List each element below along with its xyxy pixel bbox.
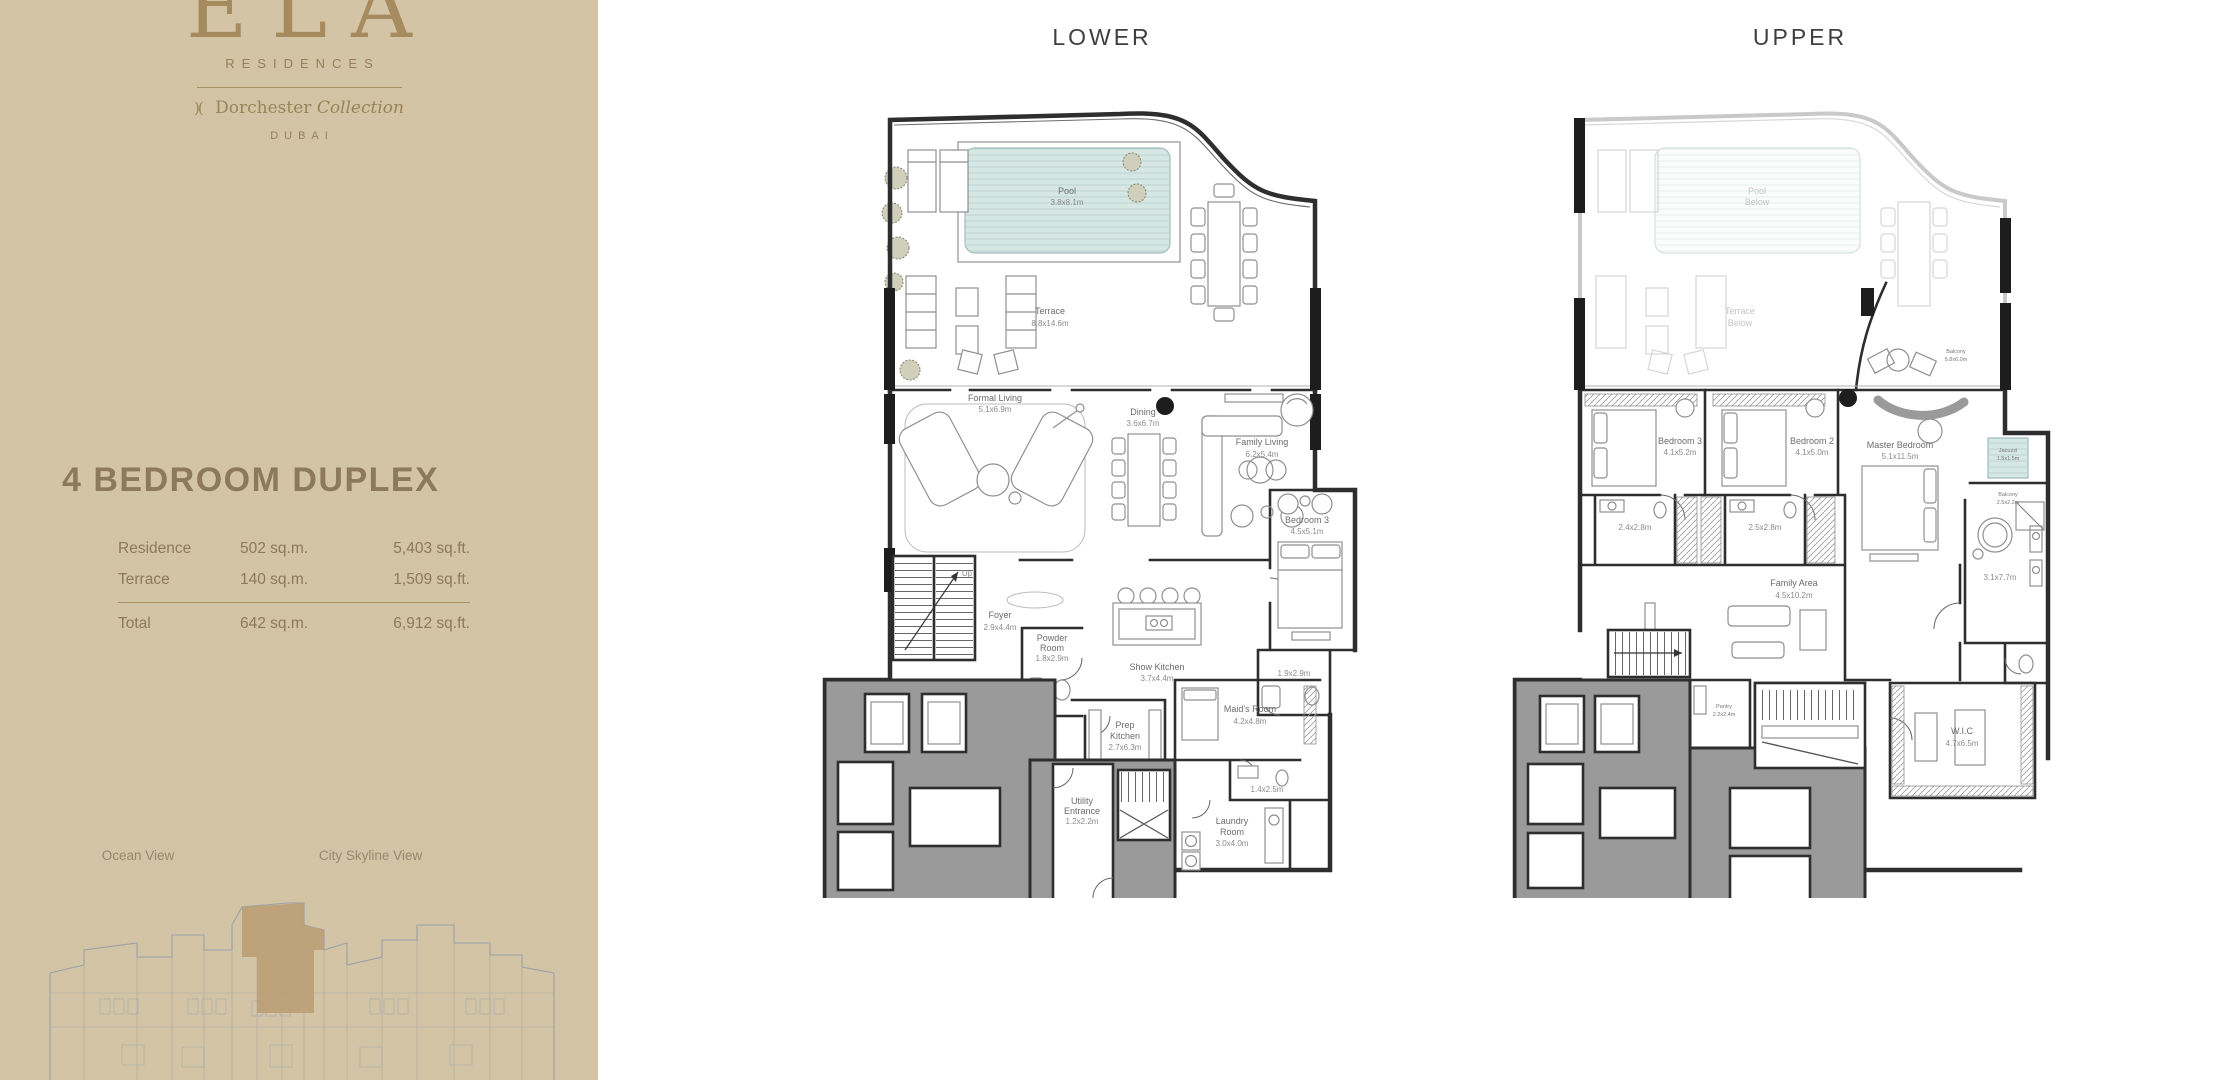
column-icon (1156, 397, 1174, 415)
show-kitchen: Show Kitchen 3.7x4.4m (1113, 588, 1201, 683)
room-dim-prep-kitchen: 2.7x6.3m (1109, 743, 1142, 752)
area-sqft: 5,403 sq.ft. (358, 540, 470, 558)
room-label-foyer: Foyer (988, 610, 1011, 620)
table-row: Terrace 140 sq.m. 1,509 sq.ft. (118, 571, 470, 589)
stairs-down (1608, 630, 1690, 677)
table-row-total: Total 642 sq.m. 6,912 sq.ft. (118, 615, 470, 633)
bedroom-2: Bedroom 2 4.1x5.0m (1713, 394, 1834, 486)
wc-toilet (2019, 655, 2033, 673)
plant-icon (900, 360, 920, 380)
room-dim-show-kitchen: 3.7x4.4m (1141, 674, 1174, 683)
room-label-dining: Dining (1130, 407, 1156, 417)
svg-text:Bedroom 3: Bedroom 3 (1658, 436, 1702, 446)
room-dim-jacuzzi: 1.5x1.5m (1997, 456, 2020, 462)
room-dim-pantry: 2.2x2.4m (1713, 712, 1736, 718)
collection-line: )( Dorchester Collection (0, 98, 598, 118)
room-dim-family-living: 6.2x5.4m (1246, 450, 1279, 459)
room-label-pool: Pool (1058, 186, 1076, 196)
svg-text:Powder: Powder (1037, 633, 1068, 643)
room-dim-utility: 1.2x2.2m (1066, 817, 1099, 826)
svg-text:Bedroom 2: Bedroom 2 (1790, 436, 1834, 446)
area-label: Total (118, 615, 240, 633)
outdoor-dining-table (1208, 202, 1240, 306)
jacuzzi: Jacuzzi 1.5x1.5m (1988, 438, 2028, 478)
svg-text:Room: Room (1040, 643, 1064, 653)
view-label-city: City Skyline View (288, 848, 453, 863)
floor-plan-upper: Pool Below Terrace Below Balcony 5.8x6.0… (1500, 98, 2090, 898)
svg-text:Balcony: Balcony (1946, 349, 1966, 355)
svg-text:Below: Below (1728, 318, 1753, 328)
area-sqm: 642 sq.m. (240, 615, 358, 633)
plan-title-upper: UPPER (1690, 24, 1910, 51)
terrace-zone: Pool 3.8x8.1m Terrace 8.8x14.6m (882, 119, 1310, 380)
svg-text:Family Area: Family Area (1770, 578, 1818, 588)
bedroom-3: Bedroom 3 4.5x5.1m (1278, 494, 1342, 640)
collection-word: Collection (317, 98, 404, 118)
room-dim-bath3: 1.9x2.9m (1278, 669, 1311, 678)
logo-divider (197, 87, 402, 88)
area-label: Residence (118, 540, 240, 558)
room-dim-balcony-top: 5.8x6.0m (1945, 357, 1968, 363)
stairs-up: Up Foyer 2.9x4.4m (893, 556, 1063, 660)
room-label-formal-living: Formal Living (968, 393, 1022, 403)
site-key-plan (42, 895, 562, 1080)
svg-text:Jacuzzi: Jacuzzi (1999, 448, 2017, 454)
room-dim-master: 5.1x11.5m (1882, 452, 1919, 461)
table-divider (118, 602, 470, 603)
brand-residences: RESIDENCES (0, 56, 598, 71)
site-highlight-unit (242, 903, 324, 1013)
room-dim-terrace: 8.8x14.6m (1031, 319, 1069, 328)
table-row: Residence 502 sq.m. 5,403 sq.ft. (118, 540, 470, 558)
room-dim-maids-bath: 1.4x2.5m (1251, 785, 1284, 794)
area-label: Terrace (118, 571, 240, 589)
room-dim-maids: 4.2x4.8m (1234, 717, 1267, 726)
view-label-ocean: Ocean View (58, 848, 218, 863)
plant-icon (1128, 184, 1146, 202)
closet (1701, 497, 1721, 563)
room-dim-laundry: 3.0x4.0m (1216, 839, 1249, 848)
maids-room: Maid's Room 4.2x4.8m 1.4x2.5m (1182, 686, 1316, 794)
column-icon (1839, 389, 1857, 407)
svg-text:Kitchen: Kitchen (1110, 731, 1140, 741)
area-sqft: 1,509 sq.ft. (358, 571, 470, 589)
brand-name: ELA (0, 0, 598, 50)
svg-text:Utility: Utility (1071, 796, 1093, 806)
master-bathroom: 3.1x7.7m (1973, 502, 2044, 673)
room-dim-bedroom2: 4.1x5.0m (1796, 448, 1829, 457)
svg-text:Master Bedroom: Master Bedroom (1867, 440, 1934, 450)
svg-text:W.I.C: W.I.C (1951, 726, 1973, 736)
room-dim-formal-living: 5.1x6.9m (979, 405, 1012, 414)
room-dim-powder: 1.8x2.9m (1036, 654, 1069, 663)
master-bedroom: Master Bedroom 5.1x11.5m (1862, 400, 1964, 561)
closet (1677, 497, 1697, 563)
terrace-below-ghost: Pool Below Terrace Below (1580, 113, 2005, 390)
area-table: Residence 502 sq.m. 5,403 sq.ft. Terrace… (118, 540, 470, 646)
bedroom3-bathroom: 2.4x2.8m (1600, 500, 1666, 532)
brand-logo: ELA RESIDENCES )( Dorchester Collection … (0, 0, 598, 142)
floor-plan-lower: Pool 3.8x8.1m Terrace 8.8x14.6m Formal L (810, 98, 1400, 898)
svg-text:Terrace: Terrace (1725, 306, 1755, 316)
room-dim-wic: 4.7x6.5m (1946, 739, 1979, 748)
service-core (1515, 680, 1865, 898)
svg-text:Balcony: Balcony (1998, 492, 2018, 498)
svg-text:Room: Room (1220, 827, 1244, 837)
collection-name: Dorchester (215, 98, 311, 118)
room-dim-bath2: 2.5x2.8m (1749, 523, 1782, 532)
bedroom2-bathroom: 2.5x2.8m (1730, 500, 1796, 532)
plan-title-lower: LOWER (992, 24, 1212, 51)
formal-living: Formal Living 5.1x6.9m (895, 393, 1097, 552)
area-sqm: 502 sq.m. (240, 540, 358, 558)
room-dim-bath3: 2.4x2.8m (1619, 523, 1652, 532)
plant-icon (1123, 153, 1141, 171)
svg-text:Laundry: Laundry (1216, 816, 1249, 826)
closet (1807, 497, 1835, 563)
room-dim-bedroom3: 4.1x5.2m (1664, 448, 1697, 457)
svg-text:Entrance: Entrance (1064, 806, 1100, 816)
svg-text:Pool: Pool (1748, 186, 1766, 196)
walk-in-closet: W.I.C 4.7x6.5m (1892, 686, 2033, 796)
room-dim-dining: 3.6x6.7m (1127, 419, 1160, 428)
room-label-show-kitchen: Show Kitchen (1129, 662, 1184, 672)
room-dim-foyer: 2.9x4.4m (984, 623, 1017, 632)
bedroom-3: Bedroom 3 4.1x5.2m (1585, 394, 1702, 486)
svg-text:Maid's Room: Maid's Room (1224, 704, 1276, 714)
svg-text:Bedroom 3: Bedroom 3 (1285, 515, 1329, 525)
collection-mark-icon: )( (194, 99, 202, 117)
area-sqm: 140 sq.m. (240, 571, 358, 589)
svg-text:Pantry: Pantry (1716, 704, 1732, 710)
dining-area: Dining 3.6x6.7m (1112, 407, 1176, 526)
stairs-label-up: Up (962, 569, 973, 578)
room-label-family-living: Family Living (1236, 437, 1289, 447)
sidebar: ELA RESIDENCES )( Dorchester Collection … (0, 0, 598, 1080)
room-dim-family: 4.5x10.2m (1775, 591, 1813, 600)
room-dim-master-bath: 3.1x7.7m (1984, 573, 2017, 582)
room-dim-bedroom3: 4.5x5.1m (1291, 527, 1324, 536)
room-label-terrace: Terrace (1035, 306, 1065, 316)
room-dim-pool: 3.8x8.1m (1051, 198, 1084, 207)
svg-text:Below: Below (1745, 197, 1770, 207)
brand-city: DUBAI (0, 130, 598, 142)
svg-text:Prep: Prep (1115, 720, 1134, 730)
floorplan-brochure-page: ELA RESIDENCES )( Dorchester Collection … (0, 0, 2220, 1080)
area-sqft: 6,912 sq.ft. (358, 615, 470, 633)
upper-balcony-top: Balcony 5.8x6.0m (1856, 283, 1968, 390)
utility-corridor (1053, 764, 1113, 898)
service-core: Utility Entrance 1.2x2.2m (825, 680, 1175, 898)
unit-title: 4 BEDROOM DUPLEX (62, 461, 439, 500)
pantry: Pantry 2.2x2.4m (1694, 686, 1736, 718)
